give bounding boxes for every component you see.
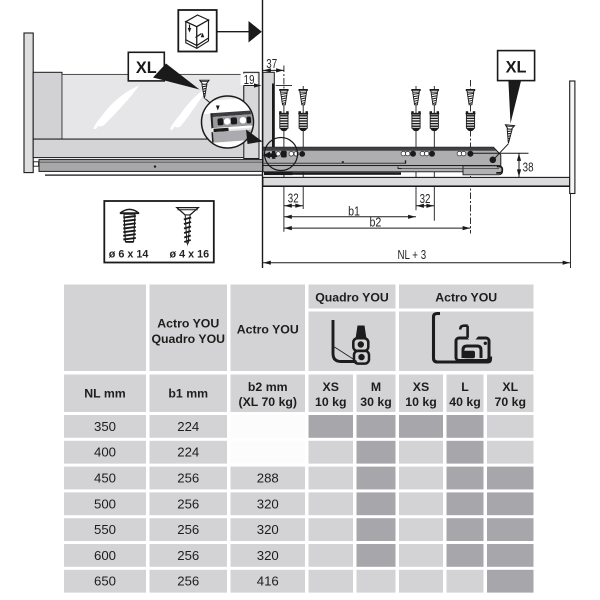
svg-text:NL mm: NL mm <box>84 387 126 401</box>
svg-text:32: 32 <box>288 192 299 206</box>
svg-text:224: 224 <box>177 445 199 460</box>
svg-text:224: 224 <box>177 419 199 434</box>
svg-text:b1 mm: b1 mm <box>168 387 208 401</box>
svg-text:ø 6 x 14: ø 6 x 14 <box>109 249 149 261</box>
svg-text:10 kg: 10 kg <box>405 395 436 409</box>
svg-text:Actro YOU: Actro YOU <box>237 323 299 337</box>
svg-text:320: 320 <box>257 548 279 563</box>
svg-text:Actro YOU: Actro YOU <box>157 317 219 331</box>
svg-text:M: M <box>371 380 381 394</box>
svg-text:256: 256 <box>177 574 199 589</box>
svg-text:XL: XL <box>502 380 518 394</box>
svg-text:b2 mm: b2 mm <box>248 380 288 394</box>
svg-text:ø 4 x 16: ø 4 x 16 <box>169 249 209 261</box>
svg-text:L: L <box>461 380 469 394</box>
svg-text:40 kg: 40 kg <box>449 395 480 409</box>
svg-text:600: 600 <box>94 548 116 563</box>
svg-text:NL + 3: NL + 3 <box>397 249 426 263</box>
svg-text:b2: b2 <box>369 215 381 230</box>
svg-text:Actro YOU: Actro YOU <box>435 291 497 305</box>
svg-text:500: 500 <box>94 496 116 511</box>
svg-text:70 kg: 70 kg <box>495 395 526 409</box>
svg-text:30 kg: 30 kg <box>360 395 391 409</box>
svg-text:XS: XS <box>323 380 339 394</box>
svg-text:450: 450 <box>94 471 116 486</box>
svg-text:32: 32 <box>420 193 431 207</box>
svg-text:b1: b1 <box>348 203 360 218</box>
svg-text:Quadro YOU: Quadro YOU <box>151 332 225 346</box>
svg-text:550: 550 <box>94 522 116 537</box>
svg-text:256: 256 <box>177 548 199 563</box>
svg-text:256: 256 <box>177 471 199 486</box>
svg-text:XS: XS <box>413 380 429 394</box>
svg-text:288: 288 <box>257 471 279 486</box>
svg-text:256: 256 <box>177 522 199 537</box>
svg-text:XL: XL <box>506 59 527 77</box>
svg-text:320: 320 <box>257 522 279 537</box>
svg-text:350: 350 <box>94 419 116 434</box>
svg-text:320: 320 <box>257 496 279 511</box>
svg-text:XL: XL <box>136 59 157 77</box>
svg-text:650: 650 <box>94 574 116 589</box>
svg-text:(XL 70 kg): (XL 70 kg) <box>238 395 297 409</box>
svg-text:416: 416 <box>257 574 279 589</box>
svg-text:256: 256 <box>177 496 199 511</box>
svg-text:10 kg: 10 kg <box>315 395 346 409</box>
svg-text:400: 400 <box>94 445 116 460</box>
svg-text:Quadro YOU: Quadro YOU <box>315 291 389 305</box>
svg-text:38: 38 <box>523 161 534 175</box>
